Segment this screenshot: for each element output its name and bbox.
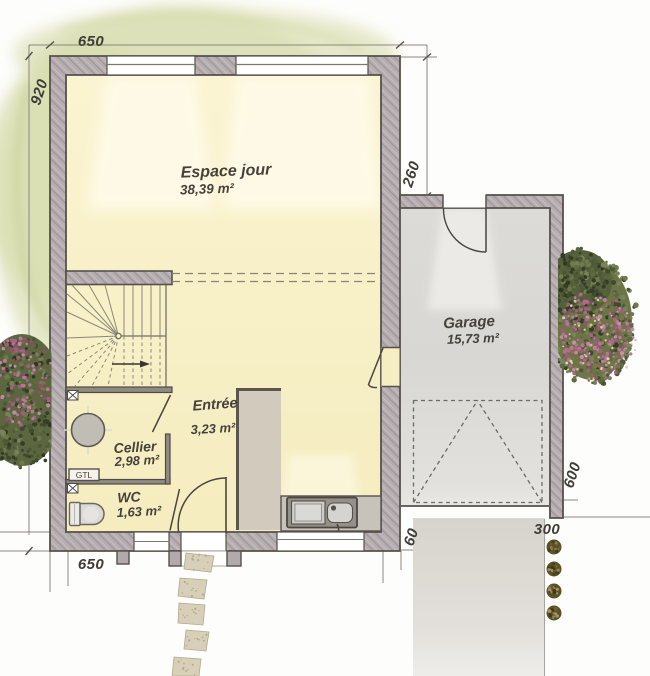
svg-text:38,39 m²: 38,39 m² <box>180 181 235 198</box>
svg-text:3,23 m²: 3,23 m² <box>190 420 236 437</box>
svg-text:WC: WC <box>117 488 142 505</box>
svg-text:Espace jour: Espace jour <box>180 161 272 181</box>
svg-text:Garage: Garage <box>443 313 496 333</box>
svg-text:Entrée: Entrée <box>192 395 238 414</box>
svg-text:15,73 m²: 15,73 m² <box>447 330 500 347</box>
svg-text:1,63 m²: 1,63 m² <box>116 503 162 520</box>
svg-text:300: 300 <box>534 521 560 538</box>
svg-text:650: 650 <box>78 556 104 573</box>
svg-text:2,98 m²: 2,98 m² <box>113 452 160 469</box>
svg-text:650: 650 <box>78 33 104 50</box>
svg-text:GTL: GTL <box>76 470 93 480</box>
